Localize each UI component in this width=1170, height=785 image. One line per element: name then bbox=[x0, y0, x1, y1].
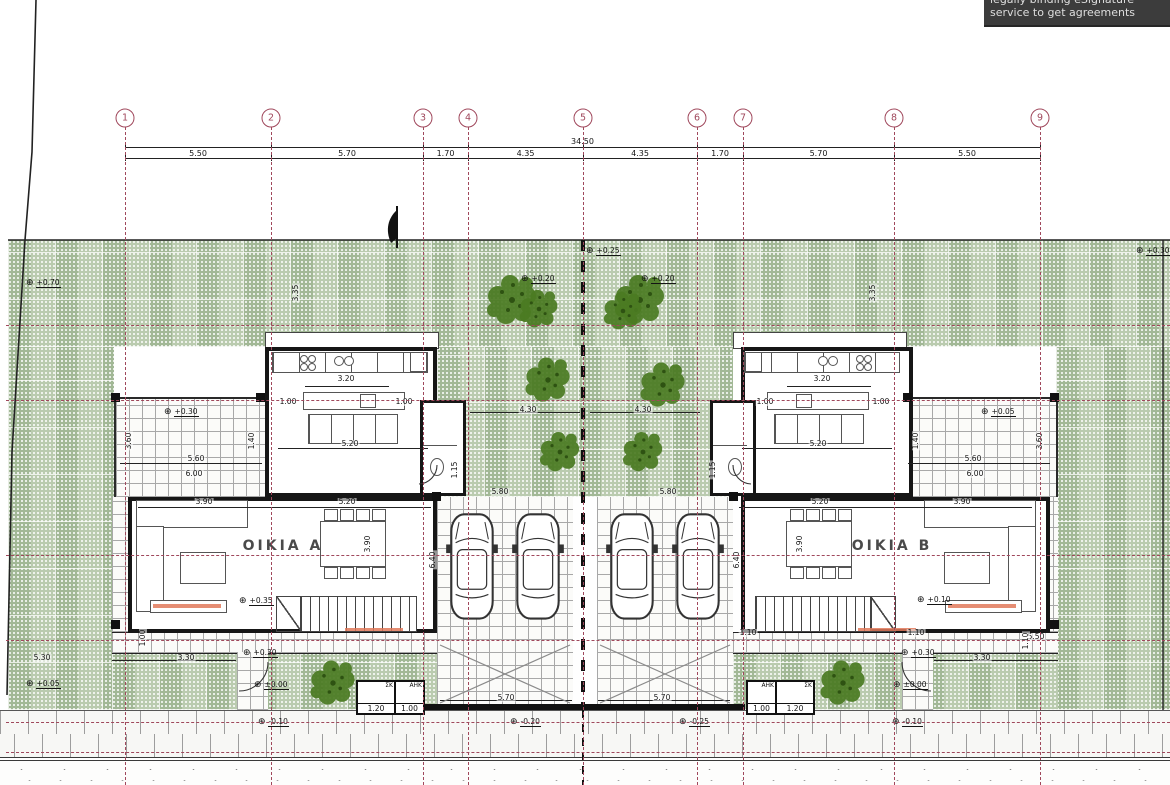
level-marker: ⊕+0.25 bbox=[586, 246, 621, 256]
dimension-label: 1.10 bbox=[1022, 632, 1030, 651]
reference-line-horizontal bbox=[6, 400, 1170, 401]
benchmark-icon: ⊕ bbox=[164, 407, 172, 417]
level-marker: ⊕+0.05 bbox=[26, 679, 61, 689]
grid-axis-line bbox=[894, 127, 895, 785]
utility-meter-box: ΑΗΚ1.00 bbox=[394, 680, 425, 715]
dimension-label: 5.20 bbox=[811, 498, 830, 506]
benchmark-icon: ⊕ bbox=[586, 246, 594, 256]
utility-meter-box: ΣΚ1.20 bbox=[775, 680, 815, 715]
grid-axis-bubble: 5 bbox=[574, 109, 593, 128]
grid-axis-line bbox=[743, 127, 744, 785]
grid-axis-bubble: 3 bbox=[414, 109, 433, 128]
segment-dimension-label: 4.35 bbox=[629, 149, 651, 158]
level-marker: ⊕+0.10 bbox=[917, 595, 952, 605]
grid-axis-bubble: 2 bbox=[262, 109, 281, 128]
dimension-label: 6.40 bbox=[733, 551, 741, 570]
dimension-label: 5.70 bbox=[497, 694, 516, 702]
level-marker: ⊕+0.70 bbox=[26, 278, 61, 288]
segment-dimension-label: 5.50 bbox=[956, 149, 978, 158]
dimension-label: 3.35 bbox=[869, 284, 877, 303]
level-marker: ⊕+0.30 bbox=[164, 407, 199, 417]
grid-axis-line bbox=[1040, 127, 1041, 785]
dimension-label: 5.60 bbox=[187, 455, 206, 463]
dimension-label: 5.70 bbox=[653, 694, 672, 702]
dimension-label: 3.30 bbox=[973, 654, 992, 662]
utility-meter-box: ΣΚ1.20 bbox=[356, 680, 396, 715]
annotations-layer: 12345678934.505.505.701.704.354.351.705.… bbox=[0, 0, 1170, 785]
segment-dimension-label: 5.50 bbox=[187, 149, 209, 158]
grid-axis-bubble: 1 bbox=[116, 109, 135, 128]
benchmark-icon: ⊕ bbox=[254, 680, 262, 690]
benchmark-icon: ⊕ bbox=[917, 595, 925, 605]
dimension-label: 3.90 bbox=[364, 535, 372, 554]
grid-axis-line bbox=[468, 127, 469, 785]
dimension-label: 3.60 bbox=[125, 432, 133, 451]
dimension-label: 3.35 bbox=[292, 284, 300, 303]
benchmark-icon: ⊕ bbox=[981, 407, 989, 417]
benchmark-icon: ⊕ bbox=[26, 679, 34, 689]
grid-axis-bubble: 6 bbox=[688, 109, 707, 128]
utility-meter-box: ΑΗΚ1.00 bbox=[746, 680, 777, 715]
grid-axis-bubble: 9 bbox=[1031, 109, 1050, 128]
dimension-label: 5.60 bbox=[964, 455, 983, 463]
grid-axis-line bbox=[271, 127, 272, 785]
segment-dimension-label: 5.70 bbox=[808, 149, 830, 158]
grid-axis-line bbox=[125, 127, 126, 785]
segment-dimension-label: 5.70 bbox=[336, 149, 358, 158]
dimension-label: 6.40 bbox=[429, 551, 437, 570]
watermark-banner[interactable]: legally binding eSignature service to ge… bbox=[984, 0, 1170, 27]
house-name-label: OIKIA B bbox=[852, 538, 933, 554]
dimension-label: 1.10 bbox=[907, 629, 926, 637]
dimension-label: 5.30 bbox=[33, 654, 52, 662]
dimension-label: 6.00 bbox=[185, 470, 204, 478]
watermark-line2: service to get agreements bbox=[990, 6, 1170, 19]
level-marker: ⊕+0.30 bbox=[243, 648, 278, 658]
dimension-label: 5.80 bbox=[659, 488, 678, 496]
benchmark-icon: ⊕ bbox=[641, 274, 649, 284]
benchmark-icon: ⊕ bbox=[26, 278, 34, 288]
level-marker: ⊕+0.05 bbox=[981, 407, 1016, 417]
dimension-label: 1.00 bbox=[139, 629, 147, 648]
grid-axis-bubble: 8 bbox=[885, 109, 904, 128]
grid-axis-bubble: 7 bbox=[734, 109, 753, 128]
dimension-label: 3.90 bbox=[195, 498, 214, 506]
benchmark-icon: ⊕ bbox=[239, 596, 247, 606]
house-name-label: OIKIA A bbox=[243, 538, 324, 554]
benchmark-icon: ⊕ bbox=[1136, 246, 1144, 256]
segment-dimension-label: 1.70 bbox=[435, 149, 457, 158]
dimension-label: 4.30 bbox=[634, 406, 653, 414]
reference-line-horizontal bbox=[6, 640, 1170, 641]
grid-axis-line bbox=[423, 127, 424, 785]
grid-axis-line bbox=[697, 127, 698, 785]
level-marker: ⊕+0.20 bbox=[641, 274, 676, 284]
dimension-label: 6.00 bbox=[966, 470, 985, 478]
dimension-label: 1.40 bbox=[248, 432, 256, 451]
dimension-label: 1.10 bbox=[739, 629, 758, 637]
dimension-label: 3.30 bbox=[177, 654, 196, 662]
site-plan-drawing: 12345678934.505.505.701.704.354.351.705.… bbox=[0, 0, 1170, 785]
grid-axis-bubble: 4 bbox=[459, 109, 478, 128]
level-marker: ⊕+0.30 bbox=[1136, 246, 1170, 256]
grid-axis-line bbox=[583, 127, 584, 785]
level-marker: ⊕+0.20 bbox=[521, 274, 556, 284]
dimension-label: 5.20 bbox=[338, 498, 357, 506]
dimension-label: 5.80 bbox=[491, 488, 510, 496]
reference-line-horizontal bbox=[6, 722, 1170, 723]
dimension-label: 4.30 bbox=[519, 406, 538, 414]
dimension-label: 1.40 bbox=[912, 432, 920, 451]
segment-dimension-label: 1.70 bbox=[709, 149, 731, 158]
level-marker: ⊕+0.30 bbox=[901, 648, 936, 658]
dimension-label: 3.20 bbox=[813, 375, 832, 383]
segment-dimension-label: 4.35 bbox=[515, 149, 537, 158]
level-marker: ⊕±0.00 bbox=[893, 680, 928, 690]
benchmark-icon: ⊕ bbox=[901, 648, 909, 658]
dimension-label: 3.20 bbox=[337, 375, 356, 383]
reference-line-horizontal bbox=[6, 325, 1170, 326]
reference-line-horizontal bbox=[6, 752, 1170, 753]
dimension-label: 1.15 bbox=[709, 461, 717, 480]
level-marker: ⊕+0.35 bbox=[239, 596, 274, 606]
dimension-label: 3.90 bbox=[796, 535, 804, 554]
dimension-label: 5.20 bbox=[341, 440, 360, 448]
dimension-label: 1.15 bbox=[451, 461, 459, 480]
dimension-label: 3.90 bbox=[953, 498, 972, 506]
benchmark-icon: ⊕ bbox=[243, 648, 251, 658]
reference-line-horizontal bbox=[6, 555, 1170, 556]
benchmark-icon: ⊕ bbox=[521, 274, 529, 284]
dimension-label: 5.20 bbox=[809, 440, 828, 448]
